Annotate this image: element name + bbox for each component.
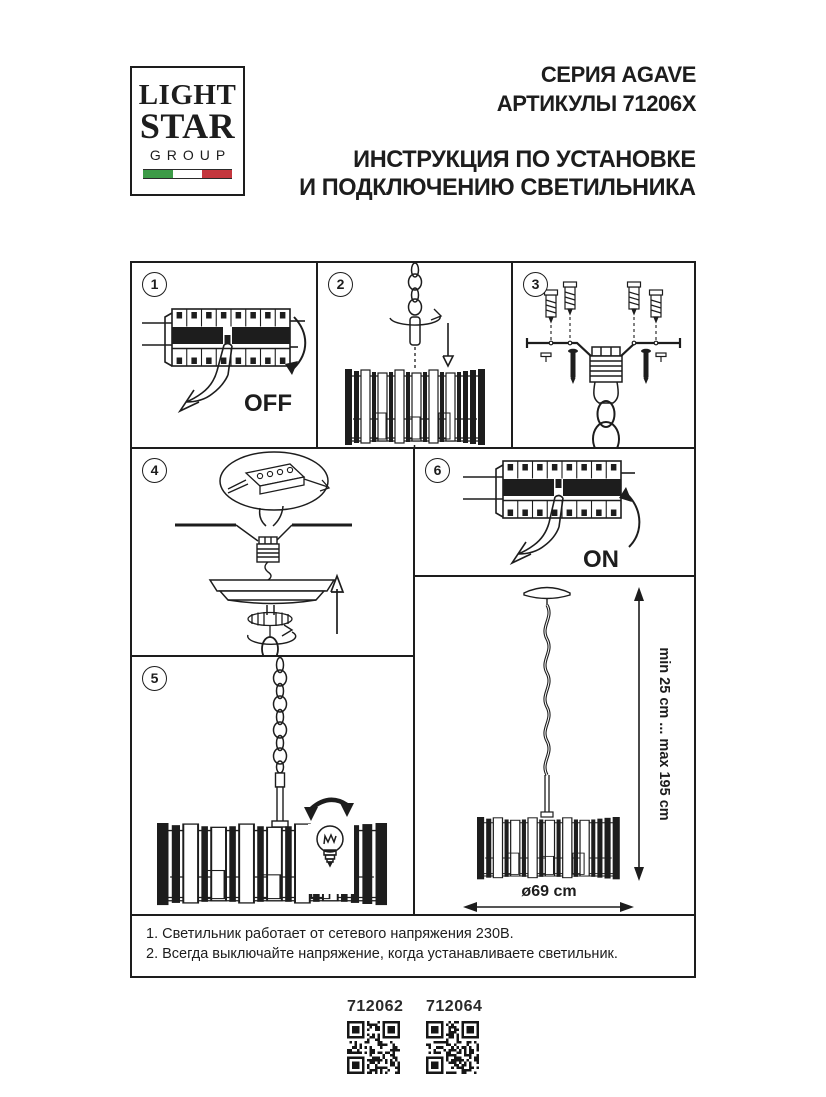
- step-panel-2: 2: [316, 261, 513, 449]
- chain-link-icon: [593, 401, 619, 447]
- diameter-dimension-line: [463, 902, 634, 912]
- step-number-badge: 4: [142, 458, 167, 483]
- step-number-badge: 5: [142, 666, 167, 691]
- threaded-hook-assembly: [590, 347, 622, 403]
- product-code-block: 712062: [347, 998, 400, 1074]
- notes-panel: 1. Светильник работает от сетевого напря…: [130, 914, 696, 978]
- step1-off-label: OFF: [244, 390, 292, 417]
- screw-rotation-arrow-icon: [304, 800, 354, 821]
- wiring-and-canopy-illustration: [132, 449, 413, 655]
- product-code-label: 712062: [347, 998, 400, 1016]
- wall-anchor-icon: [650, 290, 663, 322]
- threaded-nipple: [257, 537, 279, 580]
- bulb-installation-illustration: [132, 657, 413, 914]
- rotate-down-arrow-icon: [285, 317, 305, 375]
- chain-icon: [274, 658, 287, 774]
- series-header: СЕРИЯ AGAVE АРТИКУЛЫ 71206X: [497, 60, 696, 118]
- pointing-hand-icon: [180, 343, 232, 411]
- step-panel-3: 3: [511, 261, 696, 449]
- step-panel-1: 1: [130, 261, 318, 449]
- lightstar-logo: LIGHT STAR GROUP: [130, 66, 245, 196]
- twisted-cord: [545, 605, 549, 815]
- step-number-badge: 1: [142, 272, 167, 297]
- ceiling-canopy: [524, 588, 570, 599]
- logo-group: GROUP: [132, 146, 243, 164]
- instruction-sheet: LIGHT STAR GROUP СЕРИЯ AGAVE АРТИКУЛЫ 71…: [0, 0, 826, 1097]
- article-numbers: АРТИКУЛЫ 71206X: [497, 89, 696, 118]
- step-number-badge: 2: [328, 272, 353, 297]
- step-panel-5: 5: [130, 655, 415, 916]
- step-panel-4: 4: [130, 447, 415, 657]
- note-line-2: 2. Всегда выключайте напряжение, когда у…: [146, 945, 694, 965]
- height-range-label: min 25 cm ... max 195 cm: [656, 647, 672, 820]
- step6-on-label: ON: [583, 546, 619, 573]
- product-codes-footer: 712062 712064: [0, 998, 826, 1074]
- qr-code: [347, 1021, 400, 1074]
- rotate-up-arrow-icon: [619, 487, 639, 547]
- series-name: СЕРИЯ AGAVE: [497, 60, 696, 89]
- canopy: [210, 580, 334, 615]
- down-arrow-icon: [443, 323, 453, 366]
- qr-code: [426, 1021, 479, 1074]
- dimensions-panel: min 25 cm ... max 195 cm ø69 cm: [413, 575, 696, 916]
- rotation-arrow-icon: [248, 625, 296, 644]
- chain-icon: [409, 263, 422, 315]
- title-line-2: И ПОДКЛЮЧЕНИЮ СВЕТИЛЬНИКА: [299, 174, 696, 202]
- product-code-block: 712064: [426, 998, 479, 1074]
- height-dimension-line: [634, 587, 644, 881]
- product-code-label: 712064: [426, 998, 479, 1016]
- dimensions-illustration: min 25 cm ... max 195 cm ø69 cm: [415, 577, 694, 914]
- terminal-block-icon: [228, 464, 329, 494]
- page-title: ИНСТРУКЦИЯ ПО УСТАНОВКЕ И ПОДКЛЮЧЕНИЮ СВ…: [299, 146, 696, 201]
- italian-flag-bar: [143, 169, 232, 179]
- step-panel-6: 6: [413, 447, 696, 577]
- up-arrow-icon: [331, 576, 343, 634]
- diameter-label: ø69 cm: [521, 883, 576, 900]
- wall-anchor-icon: [545, 290, 558, 322]
- chain-link-icon: [262, 637, 278, 655]
- wall-anchor-icon: [628, 282, 641, 314]
- step-number-badge: 3: [523, 272, 548, 297]
- title-line-1: ИНСТРУКЦИЯ ПО УСТАНОВКЕ: [299, 146, 696, 174]
- logo-star: STAR: [132, 110, 243, 143]
- note-line-1: 1. Светильник работает от сетевого напря…: [146, 925, 694, 945]
- pointing-hand-icon: [512, 495, 563, 563]
- circuit-breaker-on-illustration: ON: [415, 449, 694, 575]
- step-number-badge: 6: [425, 458, 450, 483]
- wall-anchor-icon: [564, 282, 577, 314]
